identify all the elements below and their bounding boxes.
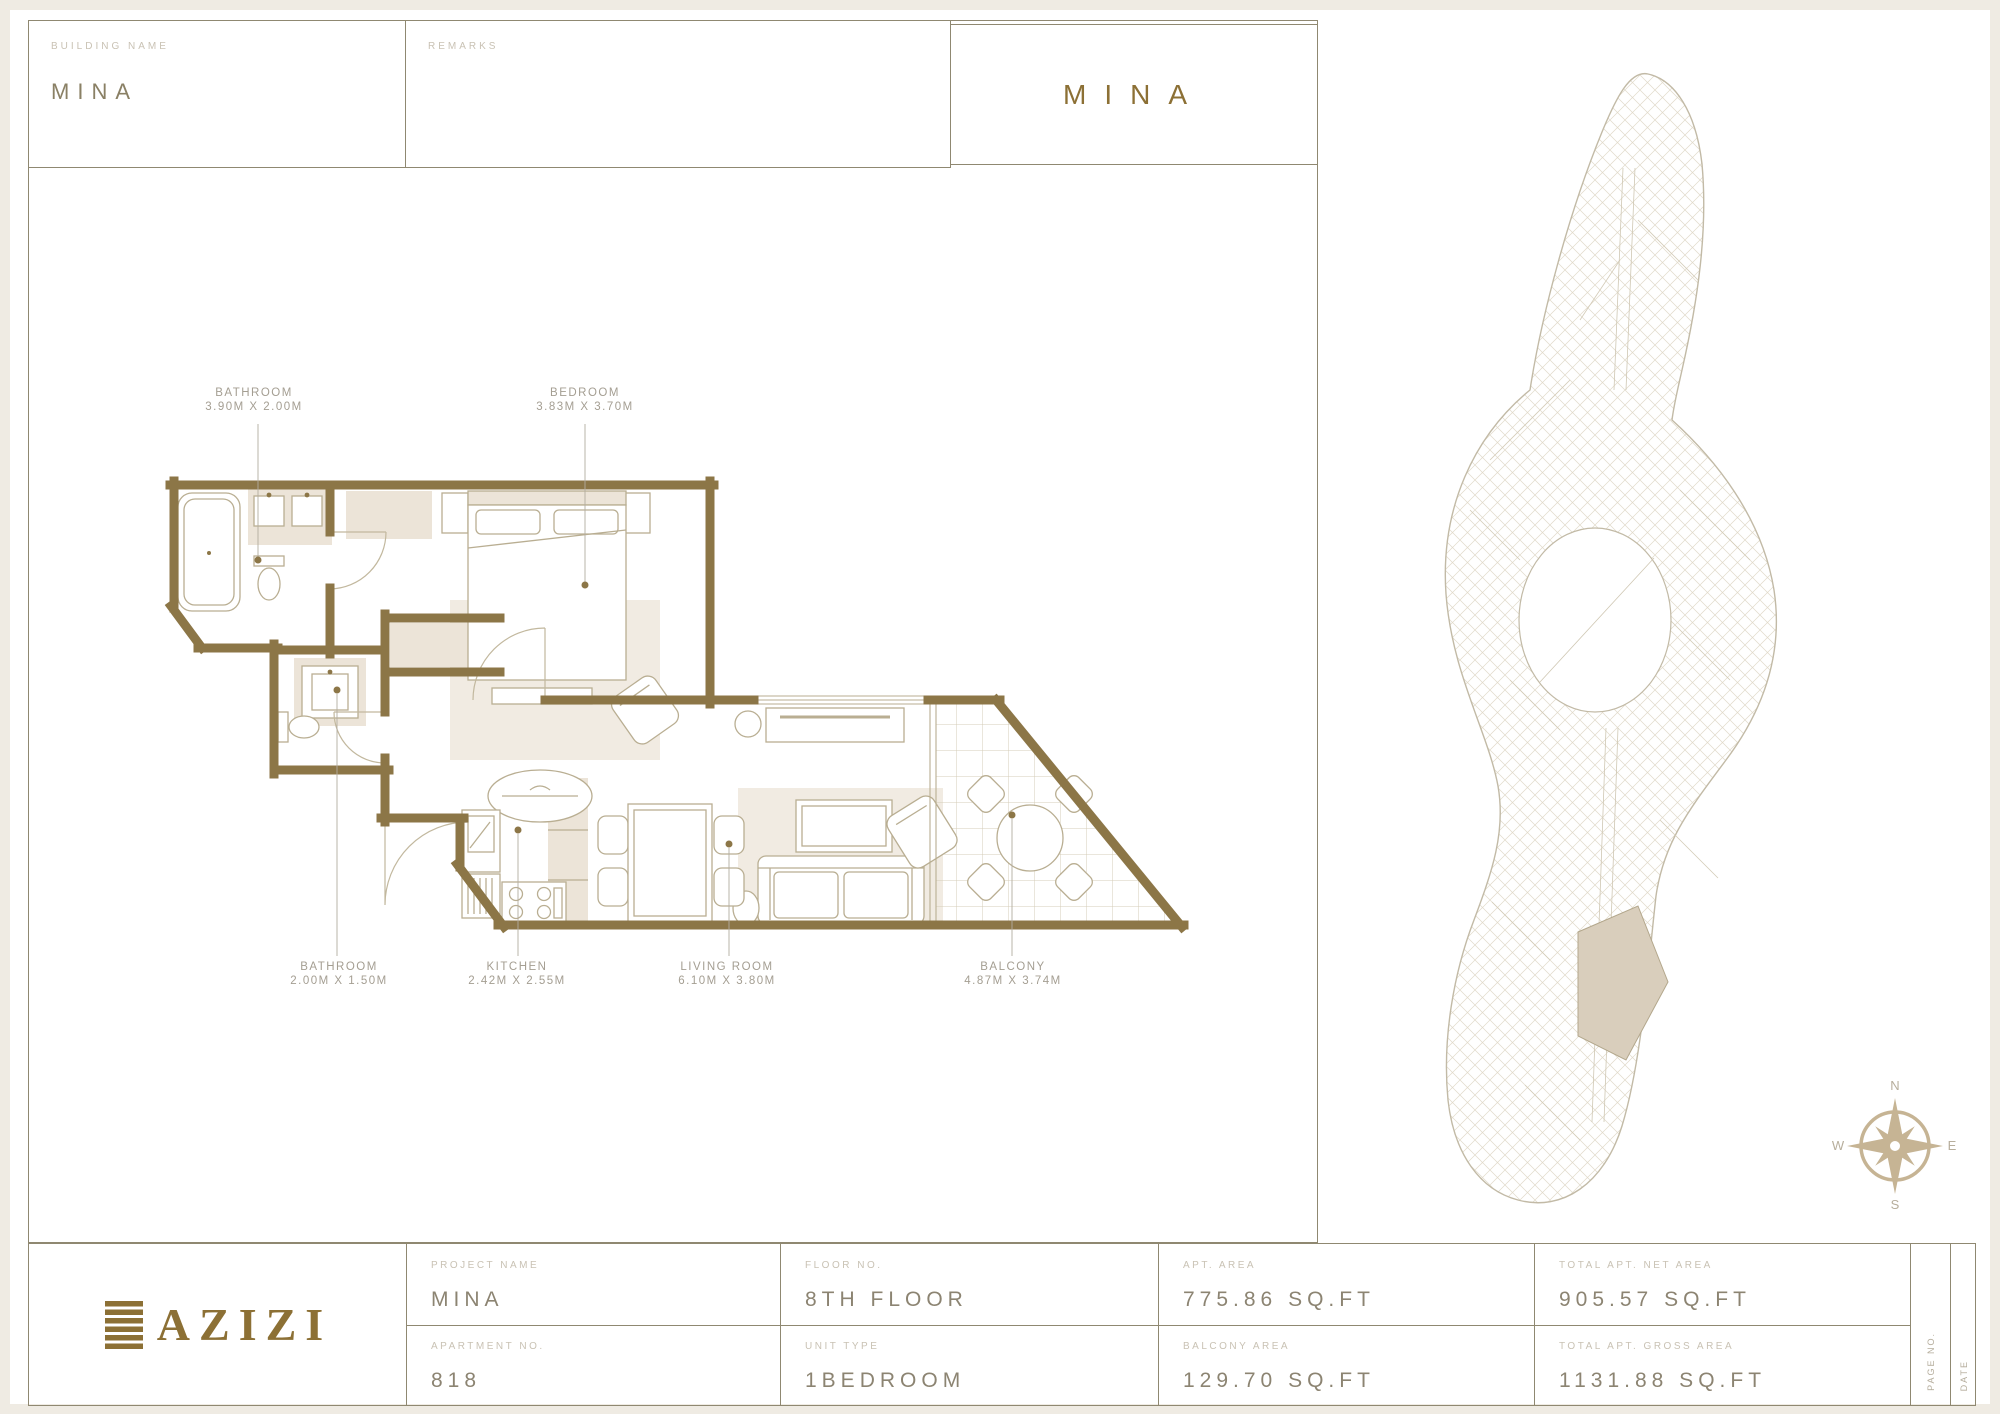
compass-rose: N E S W [1830,1072,1960,1212]
building-name-value: MINA [51,79,138,105]
compass-hub [1890,1141,1900,1151]
azizi-logo-icon [103,1300,145,1350]
apt-area-cell: APT. AREA 775.86 SQ.FT [1158,1244,1534,1325]
compass-n-label: N [1890,1078,1899,1093]
room-label-living-room: LIVING ROOM 6.10M X 3.80M [647,961,807,987]
gross-area-cell: TOTAL APT. GROSS AREA 1131.88 SQ.FT [1534,1325,1910,1405]
remarks-box: REMARKS [405,20,951,168]
compass-w-label: W [1832,1138,1845,1153]
room-label-kitchen: KITCHEN 2.42M X 2.55M [437,961,597,987]
compass-s-label: S [1891,1197,1900,1212]
title-block: AZIZI PROJECT NAME MINA APARTMENT NO. 81… [28,1243,1976,1406]
room-label-bathroom-1: BATHROOM 3.90M X 2.00M [174,387,334,413]
floor-no-cell: FLOOR NO. 8TH FLOOR [780,1244,1158,1325]
page-title: MINA [951,25,1317,164]
footer-row-divider [406,1325,1910,1326]
room-label-bathroom-2: BATHROOM 2.00M X 1.50M [259,961,419,987]
page-no-cell: PAGE NO. [1910,1244,1950,1405]
remarks-label: REMARKS [428,41,498,52]
net-area-cell: TOTAL APT. NET AREA 905.57 SQ.FT [1534,1244,1910,1325]
azizi-logo: AZIZI [29,1244,406,1405]
apartment-no-cell: APARTMENT NO. 818 [406,1325,780,1405]
highlighted-unit [1578,906,1668,1060]
title-box: MINA [950,24,1318,165]
date-cell: DATE [1950,1244,1976,1405]
azizi-logo-text: AZIZI [157,1298,332,1351]
building-key-plan [1430,60,1810,1210]
room-label-balcony: BALCONY 4.87M X 3.74M [933,961,1093,987]
building-name-label: BUILDING NAME [51,41,169,52]
room-label-bedroom: BEDROOM 3.83M X 3.70M [505,387,665,413]
key-plan-courtyard [1519,528,1671,712]
unit-type-cell: UNIT TYPE 1BEDROOM [780,1325,1158,1405]
balcony-area-cell: BALCONY AREA 129.70 SQ.FT [1158,1325,1534,1405]
building-name-box: BUILDING NAME MINA [28,20,406,168]
project-name-cell: PROJECT NAME MINA [406,1244,780,1325]
floorplan-sheet: { "colors": { "accent_gold": "#8c7035", … [0,0,2000,1414]
floor-plan-drawing [150,360,1210,1000]
compass-e-label: E [1948,1138,1957,1153]
